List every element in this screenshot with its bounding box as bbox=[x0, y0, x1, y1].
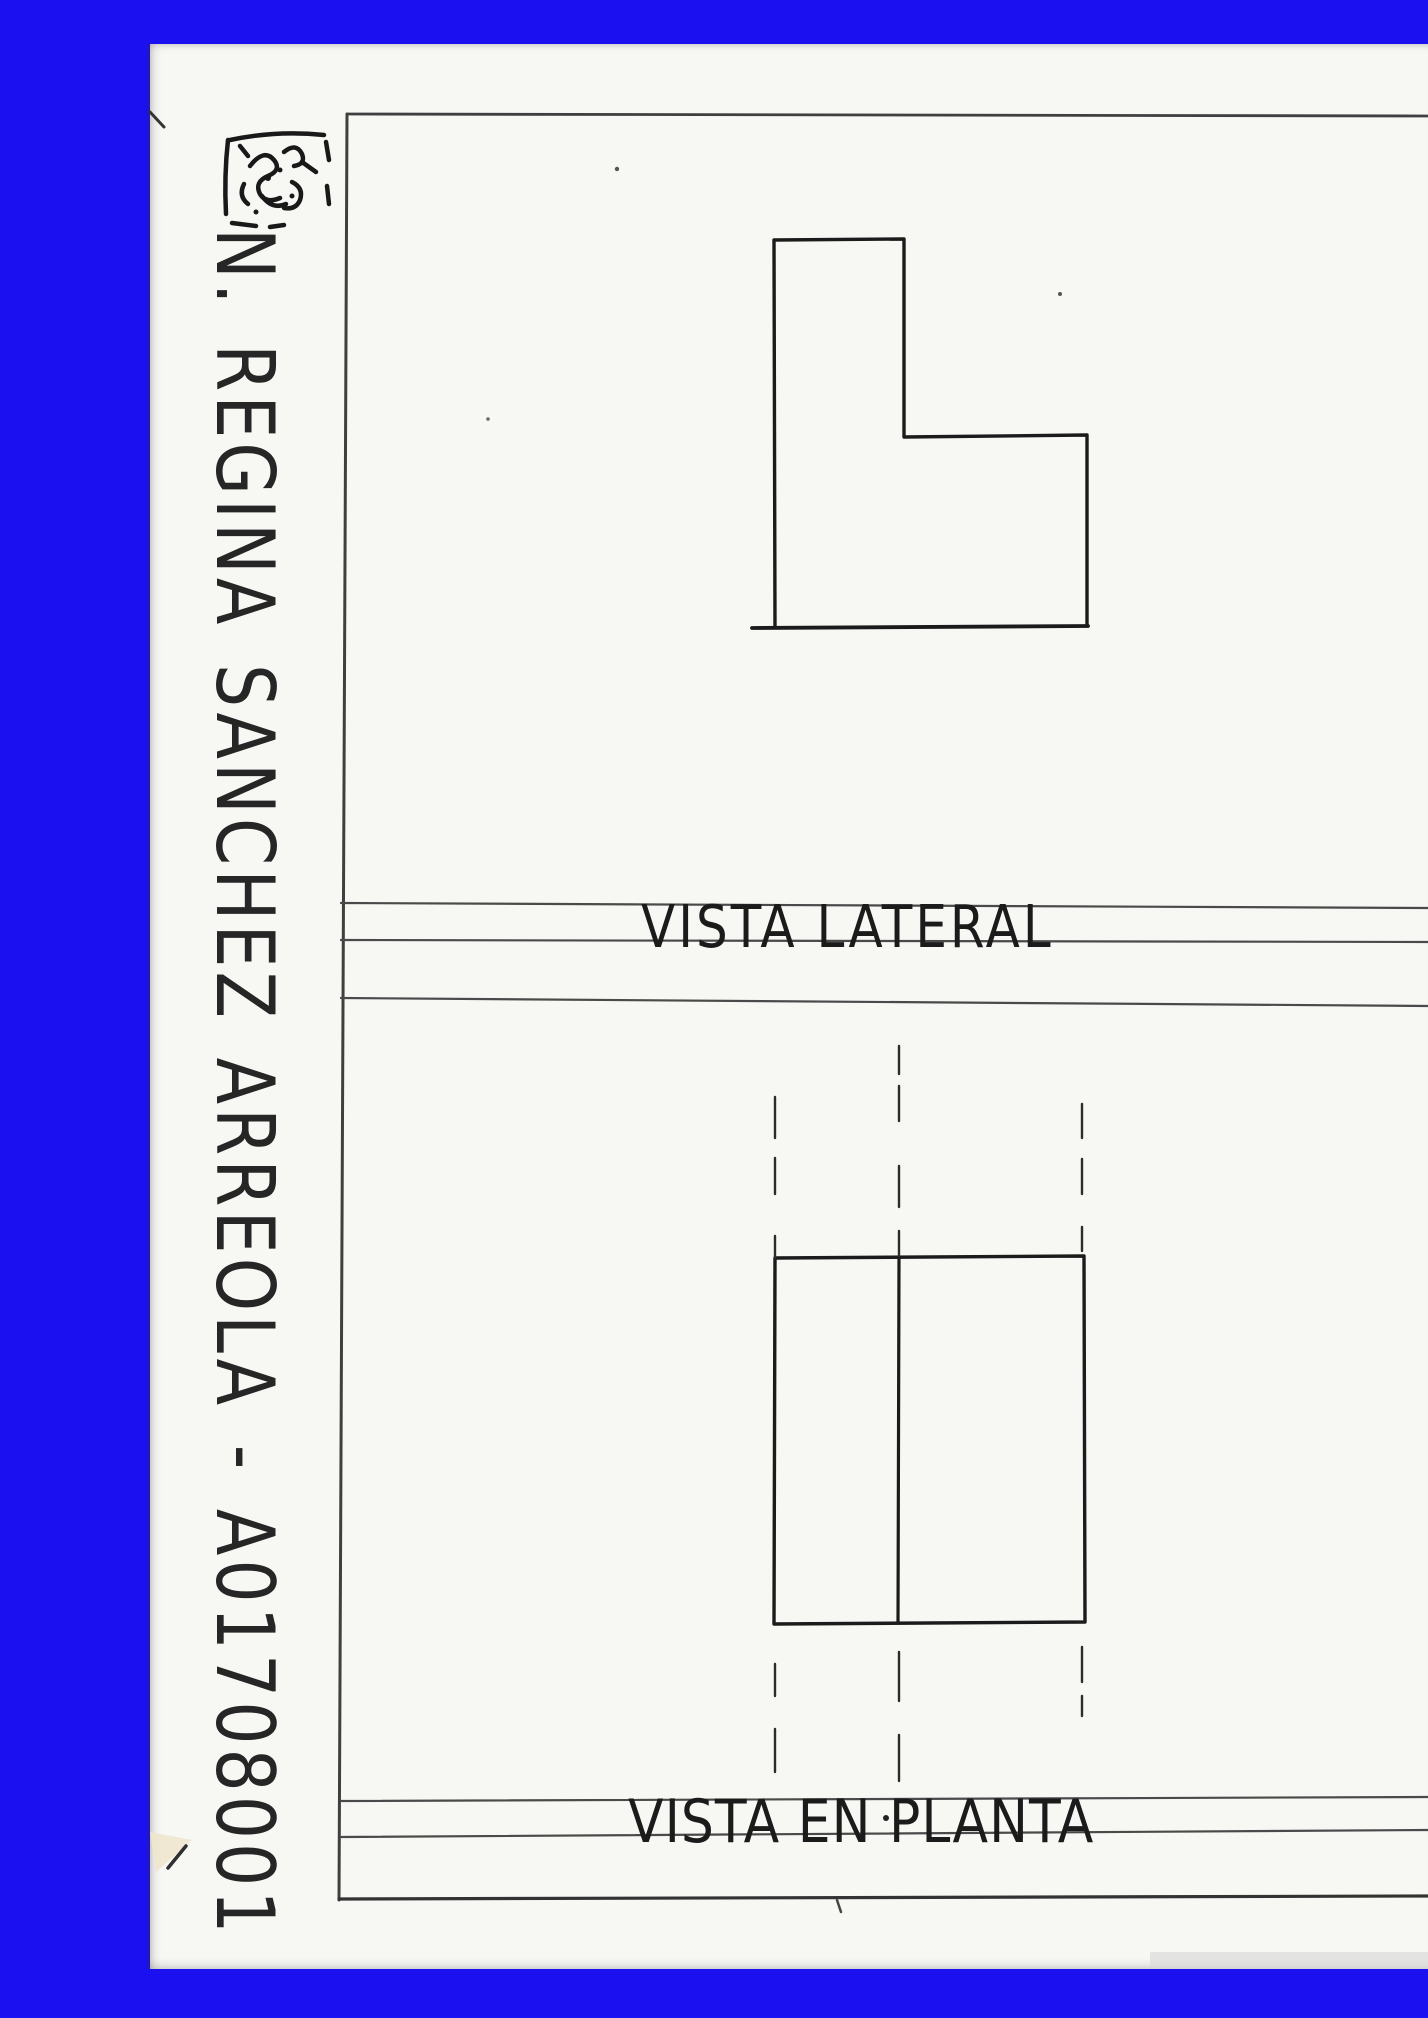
section-divider-lines bbox=[341, 903, 1428, 1837]
plan-view-center-line bbox=[898, 1257, 899, 1623]
lateral-view-outline bbox=[752, 239, 1088, 628]
author-name-vertical: N. REGINA SANCHEZ ARREOLA - A01708001 bbox=[203, 228, 283, 1938]
scanned-drawing-page: N. REGINA SANCHEZ ARREOLA - A01708001 VI… bbox=[0, 0, 1428, 2018]
lateral-view-label: VISTA LATERAL bbox=[641, 894, 1054, 962]
plan-view-outline bbox=[774, 1256, 1085, 1624]
projection-dashed-lines bbox=[775, 1046, 1082, 1781]
title-frame bbox=[339, 114, 1428, 1900]
plan-view-label: VISTA EN PLANTA bbox=[628, 1789, 1094, 1858]
crossed-out-scribble bbox=[225, 133, 329, 227]
